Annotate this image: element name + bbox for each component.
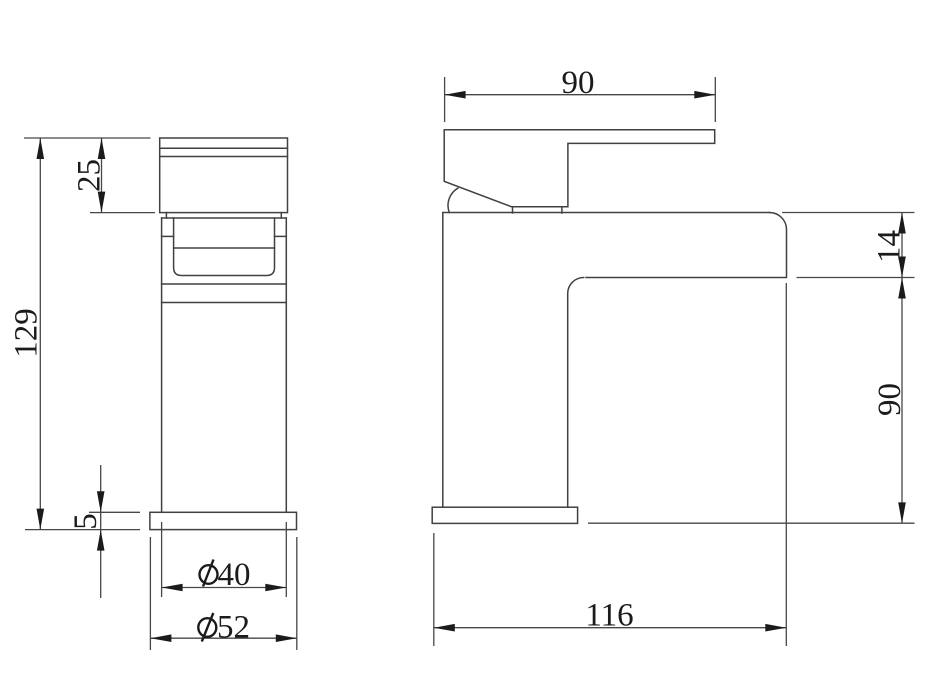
- svg-text:14: 14: [872, 230, 908, 263]
- svg-text:40: 40: [218, 557, 251, 593]
- svg-text:5: 5: [68, 513, 104, 530]
- svg-text:129: 129: [9, 308, 45, 358]
- svg-text:116: 116: [585, 598, 633, 634]
- svg-text:90: 90: [562, 65, 595, 101]
- svg-text:25: 25: [72, 159, 108, 192]
- svg-text:52: 52: [217, 610, 250, 646]
- svg-text:90: 90: [872, 383, 908, 416]
